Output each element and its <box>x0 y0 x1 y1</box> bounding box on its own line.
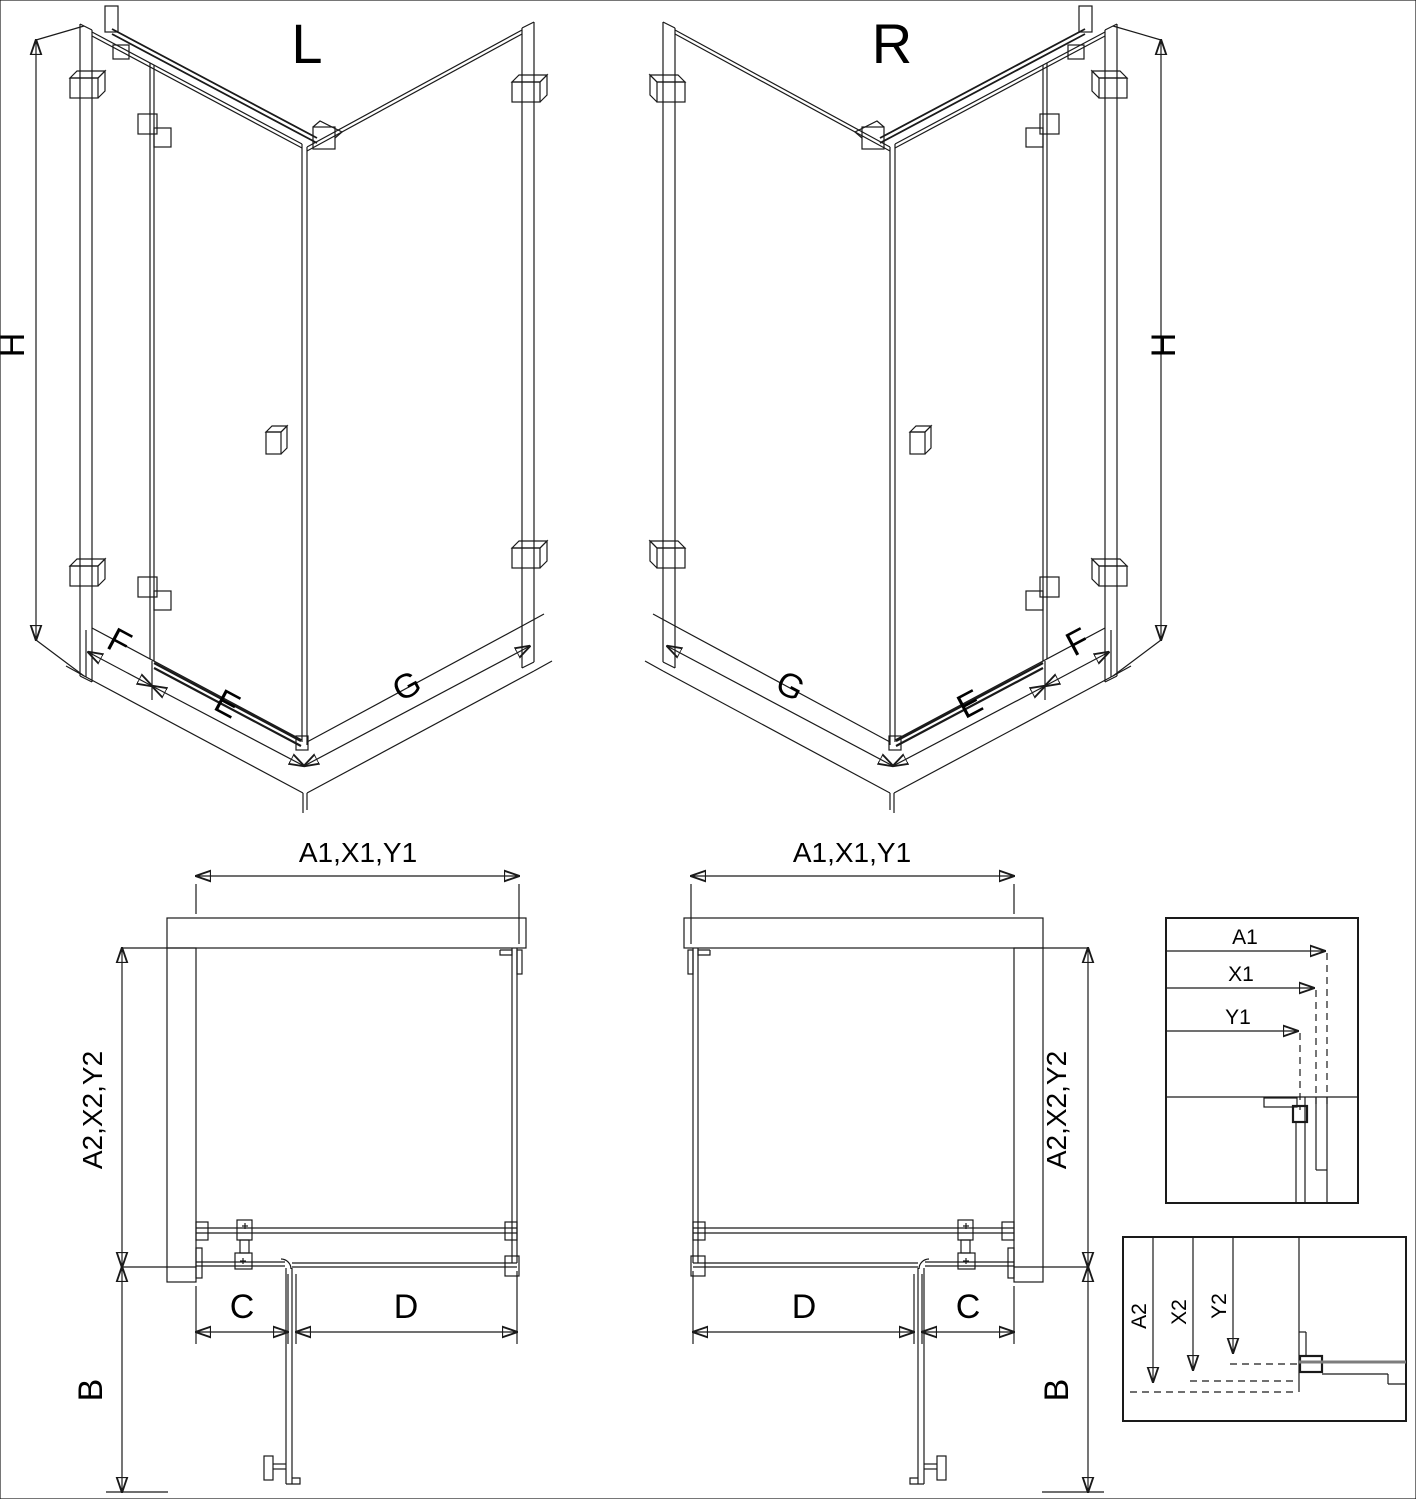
detail-label-a1: A1 <box>1232 926 1258 949</box>
detail-label-y1: Y1 <box>1225 1006 1251 1029</box>
dim-label-a1x1y1: A1,X1,Y1 <box>299 837 417 868</box>
wall-bracket <box>650 75 685 102</box>
background <box>0 0 1416 1499</box>
dim-label-h: H <box>1145 333 1183 358</box>
wall-top <box>167 918 526 948</box>
detail-label-x1: X1 <box>1228 963 1254 986</box>
dim-label-a2x2y2: A2,X2,Y2 <box>1041 1051 1072 1169</box>
dim-label-g: G <box>386 663 427 709</box>
wall-top <box>684 918 1043 948</box>
dim-a1-left: A1,X1,Y1 <box>196 837 519 944</box>
iso-left-title: L <box>291 12 322 75</box>
detail-label-x2: X2 <box>1168 1299 1191 1325</box>
dim-cd-right: D C <box>693 1271 1014 1344</box>
tray-profile-section <box>1299 1237 1406 1392</box>
profile-section <box>1264 1097 1327 1203</box>
detail-depth-measurement: A2 X2 Y2 <box>1123 1237 1406 1421</box>
dim-b-left: B <box>72 1267 168 1492</box>
dim-label-b: B <box>1038 1379 1076 1402</box>
wall-bracket <box>650 541 685 568</box>
shower-enclosure-drawing: L <box>0 0 1416 1499</box>
wall-bracket <box>70 71 105 98</box>
side-panel <box>500 948 522 1276</box>
dim-label-f: F <box>1060 621 1096 664</box>
dim-label-d: D <box>394 1288 419 1326</box>
dim-label-c: C <box>230 1288 255 1326</box>
dim-a2-right: A2,X2,Y2 <box>1014 948 1088 1267</box>
dim-label-e: E <box>951 682 989 726</box>
dim-cd-left: C D <box>196 1271 517 1344</box>
dim-label-c: C <box>956 1288 981 1326</box>
detail-label-a2: A2 <box>1128 1303 1151 1329</box>
dim-label-f: F <box>101 621 137 664</box>
dim-label-b: B <box>72 1379 110 1402</box>
dim-b-right: B <box>1038 1267 1104 1492</box>
dim-label-g: G <box>770 663 811 709</box>
dim-label-e: E <box>208 682 246 726</box>
dim-h-left: H <box>0 26 84 676</box>
dim-label-h: H <box>0 333 32 358</box>
dim-label-a1x1y1: A1,X1,Y1 <box>793 837 911 868</box>
wall-bracket <box>512 541 547 568</box>
plan-view-left: A1,X1,Y1 A2,X2,Y2 B C D <box>72 837 526 1492</box>
wall-bracket <box>512 75 547 102</box>
iso-view-right: R <box>645 6 1183 813</box>
dim-label-a2x2y2: A2,X2,Y2 <box>77 1051 108 1169</box>
dim-h-right: H <box>1113 26 1183 676</box>
detail-label-y2: Y2 <box>1208 1293 1231 1319</box>
iso-view-left: L <box>0 6 552 813</box>
wall-bracket <box>1092 71 1127 98</box>
threshold <box>693 1263 918 1267</box>
wall-left <box>167 948 196 1282</box>
door-handle-plan <box>264 1456 273 1480</box>
open-door <box>264 1259 300 1484</box>
dim-label-d: D <box>792 1288 817 1326</box>
dim-a2-left: A2,X2,Y2 <box>77 948 196 1267</box>
iso-right-title: R <box>872 12 912 75</box>
door-handle <box>910 426 931 454</box>
door-handle <box>266 426 287 454</box>
technical-drawing-page: L <box>0 0 1416 1499</box>
open-door <box>910 1259 946 1484</box>
wall-bracket <box>1092 559 1127 586</box>
plan-view-right: A1,X1,Y1 A2,X2,Y2 B D C <box>684 837 1104 1492</box>
wall-right <box>1014 948 1043 1282</box>
wall-bracket <box>70 559 105 586</box>
door-handle-plan <box>937 1456 946 1480</box>
threshold <box>292 1263 517 1267</box>
dim-a1-right: A1,X1,Y1 <box>691 837 1014 944</box>
detail-width-measurement: A1 X1 Y1 <box>1166 918 1358 1203</box>
side-panel <box>688 948 710 1276</box>
